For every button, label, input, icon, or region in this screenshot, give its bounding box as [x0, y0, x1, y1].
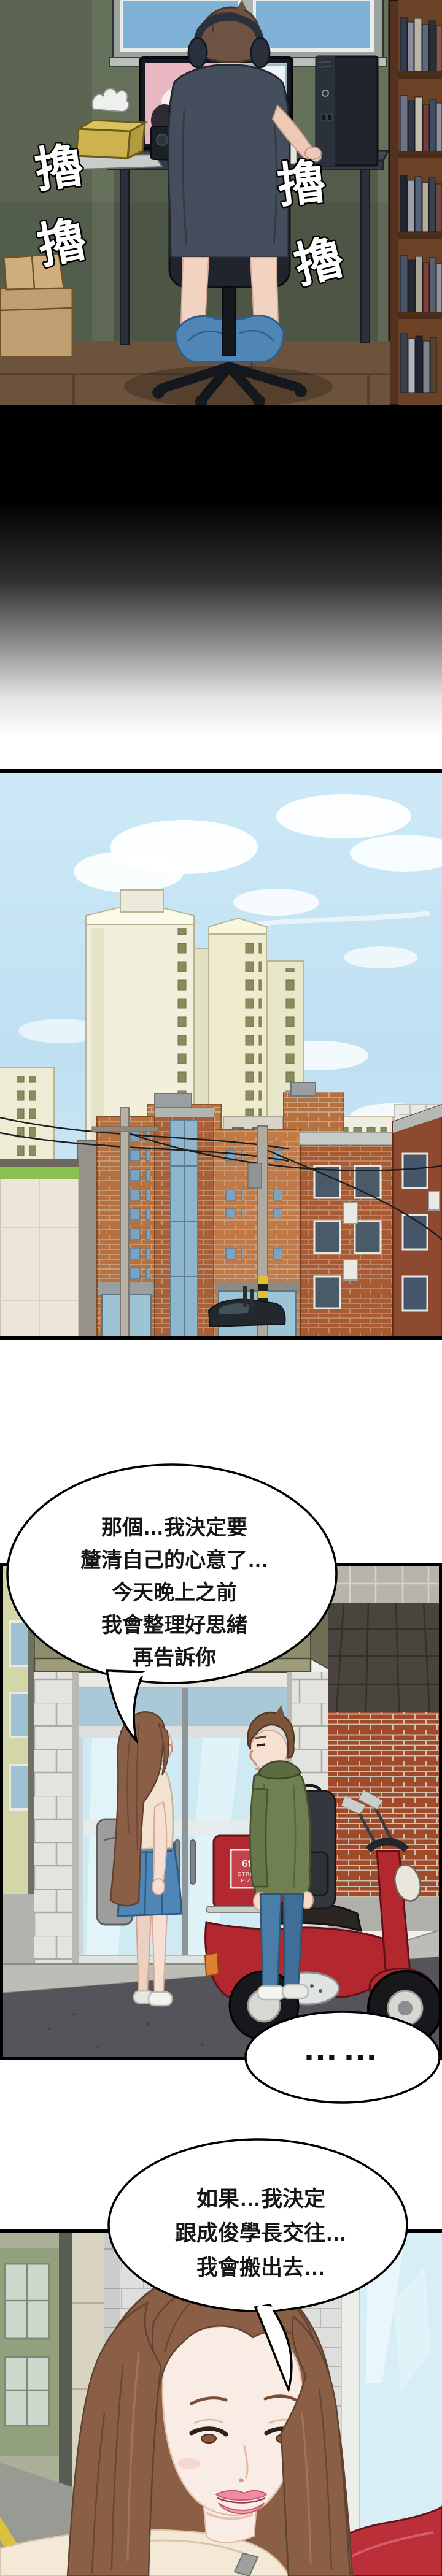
bubble-1-text: 那個…我決定要 釐清自己的心意了… 今天晚上之前 我會整理好思緒 再告訴你: [4, 1462, 345, 1674]
webtoon-page: 擼 擼 擼 擼: [0, 0, 442, 2576]
panel-city-skyline: [0, 773, 442, 1340]
panel-divider-line: [0, 769, 442, 773]
bubble-3-line: 如果…我決定: [106, 2182, 416, 2217]
desk-leg-left: [120, 169, 129, 345]
woman-hand: [152, 1879, 165, 1895]
jeans-leg: [260, 1894, 281, 1988]
woman-shoe: [149, 1992, 172, 2006]
bookshelf: [389, 0, 442, 405]
books-bay-4: [400, 255, 442, 313]
desk-leg-right: [361, 169, 370, 342]
t-shirt: [168, 65, 290, 258]
books-bay-3: [400, 175, 442, 232]
bubble-1-line: 那個…我決定要: [4, 1512, 345, 1544]
caster-icon: [295, 385, 307, 397]
bubble-3-line: 跟成俊學長交往…: [106, 2217, 416, 2251]
panel-fade-to-black: [0, 405, 442, 769]
pedestrian-silhouette: [243, 1286, 247, 1307]
usb-port-icon: [328, 114, 332, 120]
transformer-box: [248, 1163, 262, 1188]
jacket-sleeve: [250, 1788, 268, 1887]
bubble-tail: [255, 2305, 292, 2390]
books-bottom-bay: [400, 334, 436, 393]
upper-lip: [216, 2491, 266, 2500]
headphone-cup-left-icon: [188, 38, 207, 67]
eye-left: [201, 2434, 216, 2443]
bubble-1-line: 今天晚上之前: [4, 1577, 345, 1609]
pc-tower: [316, 56, 378, 166]
bubble-1-line: 再告訴你: [4, 1642, 345, 1674]
caster-icon: [152, 386, 165, 399]
man-shoe: [258, 1986, 285, 1999]
bubble-3-text: 如果…我決定 跟成俊學長交往… 我會搬出去…: [106, 2137, 416, 2285]
tail-light-icon: [205, 1953, 219, 1976]
man-shoe: [282, 1985, 308, 1998]
sfx-text-1: 擼: [31, 137, 87, 197]
usb-port-icon: [322, 114, 326, 120]
books-top-bay: [400, 17, 442, 71]
woman-arm: [153, 1802, 166, 1880]
ac-unit-icon: [344, 1259, 357, 1280]
ac-unit-icon: [344, 1203, 357, 1224]
dark-underpass-ceiling: [328, 1563, 442, 1712]
door-handle-icon: [190, 1840, 195, 1884]
speech-bubble-1: 那個…我決定要 釐清自己的心意了… 今天晚上之前 我會整理好思緒 再告訴你: [4, 1462, 345, 1752]
green-roof-band: [0, 1167, 79, 1179]
chair-stem: [222, 287, 236, 356]
panel-computer-room: 擼 擼 擼 擼: [0, 0, 442, 405]
bubble-1-line: 我會整理好思緒: [4, 1609, 345, 1642]
pedestrian-silhouette: [250, 1289, 254, 1307]
sfx-text-2: 擼: [33, 212, 90, 274]
bubble-tail: [107, 1671, 144, 1741]
speech-bubble-3: 如果…我決定 跟成俊學長交往… 我會搬出去…: [106, 2137, 416, 2401]
panel-border-bottom: [0, 1336, 442, 1340]
speech-bubble-2: ……: [243, 2009, 442, 2105]
bubble-3-line: 我會搬出去…: [106, 2251, 416, 2285]
bubble-1-line: 釐清自己的心意了…: [4, 1544, 345, 1577]
sfx-text-3: 擼: [275, 154, 328, 213]
bubble-2-text: ……: [243, 2000, 442, 2096]
ac-unit-icon: [428, 1192, 440, 1210]
headphone-cup-right-icon: [251, 38, 269, 67]
books-bay-2: [400, 96, 442, 152]
